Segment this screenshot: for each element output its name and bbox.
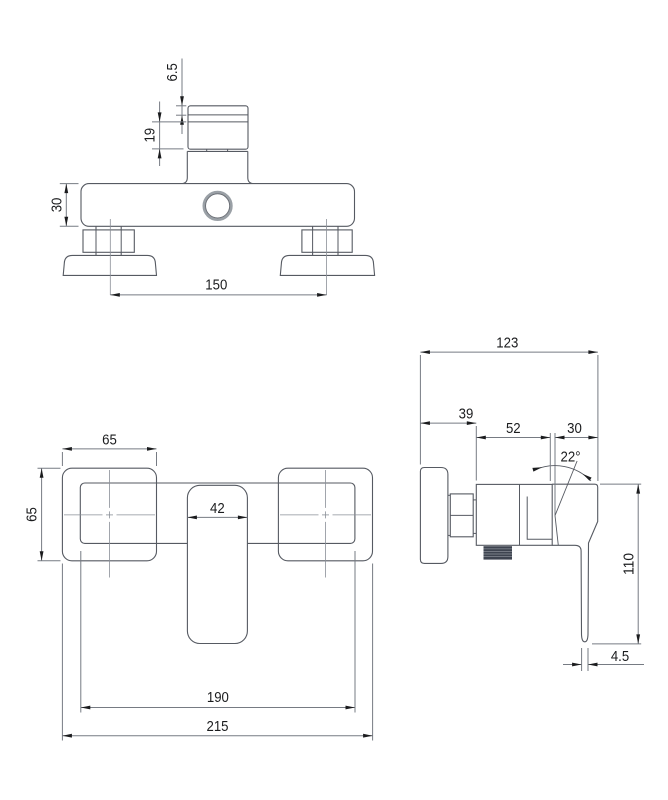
svg-text:19: 19 — [143, 128, 159, 143]
svg-text:4.5: 4.5 — [611, 649, 629, 665]
svg-text:52: 52 — [506, 421, 521, 437]
svg-text:30: 30 — [567, 421, 582, 437]
svg-text:39: 39 — [459, 407, 474, 423]
svg-text:65: 65 — [102, 432, 117, 448]
svg-text:215: 215 — [207, 719, 229, 735]
svg-text:6.5: 6.5 — [165, 63, 181, 81]
svg-text:65: 65 — [25, 507, 41, 522]
svg-text:190: 190 — [207, 690, 229, 706]
svg-text:110: 110 — [621, 553, 637, 575]
svg-text:42: 42 — [210, 501, 225, 517]
svg-text:123: 123 — [496, 336, 518, 352]
svg-text:150: 150 — [205, 278, 227, 294]
svg-text:22°: 22° — [561, 450, 581, 466]
svg-text:30: 30 — [49, 198, 65, 213]
